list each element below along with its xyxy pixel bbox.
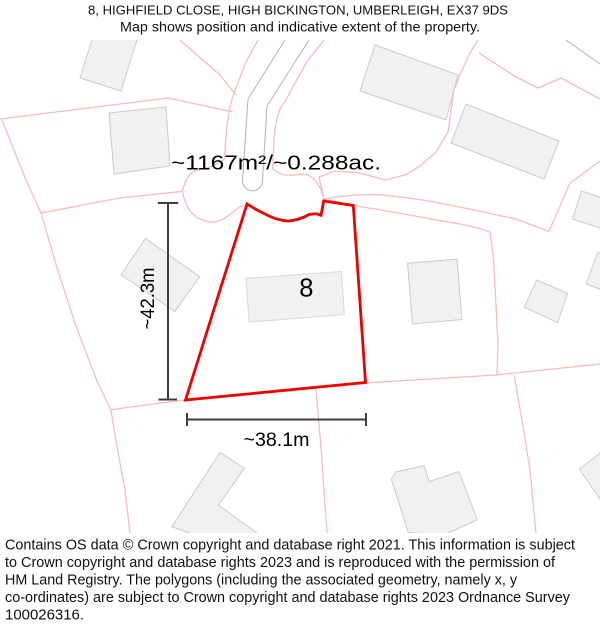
svg-text:to Crown copyright and databas: to Crown copyright and database rights 2… bbox=[5, 555, 556, 571]
svg-text:Map shows position and indicat: Map shows position and indicative extent… bbox=[120, 19, 480, 35]
svg-text:8, HIGHFIELD CLOSE, HIGH BICKI: 8, HIGHFIELD CLOSE, HIGH BICKINGTON, UMB… bbox=[88, 3, 508, 18]
svg-text:co-ordinates) are subject to C: co-ordinates) are subject to Crown copyr… bbox=[5, 590, 571, 606]
svg-text:~1167m²/~0.288ac.: ~1167m²/~0.288ac. bbox=[171, 153, 381, 175]
svg-text:8: 8 bbox=[299, 275, 313, 303]
svg-text:~38.1m: ~38.1m bbox=[244, 430, 310, 451]
svg-text:HM Land Registry. The polygons: HM Land Registry. The polygons (includin… bbox=[5, 573, 518, 589]
svg-text:Contains OS data © Crown copyr: Contains OS data © Crown copyright and d… bbox=[5, 538, 575, 554]
svg-text:100026316.: 100026316. bbox=[5, 608, 84, 624]
svg-text:~42.3m: ~42.3m bbox=[138, 268, 159, 330]
